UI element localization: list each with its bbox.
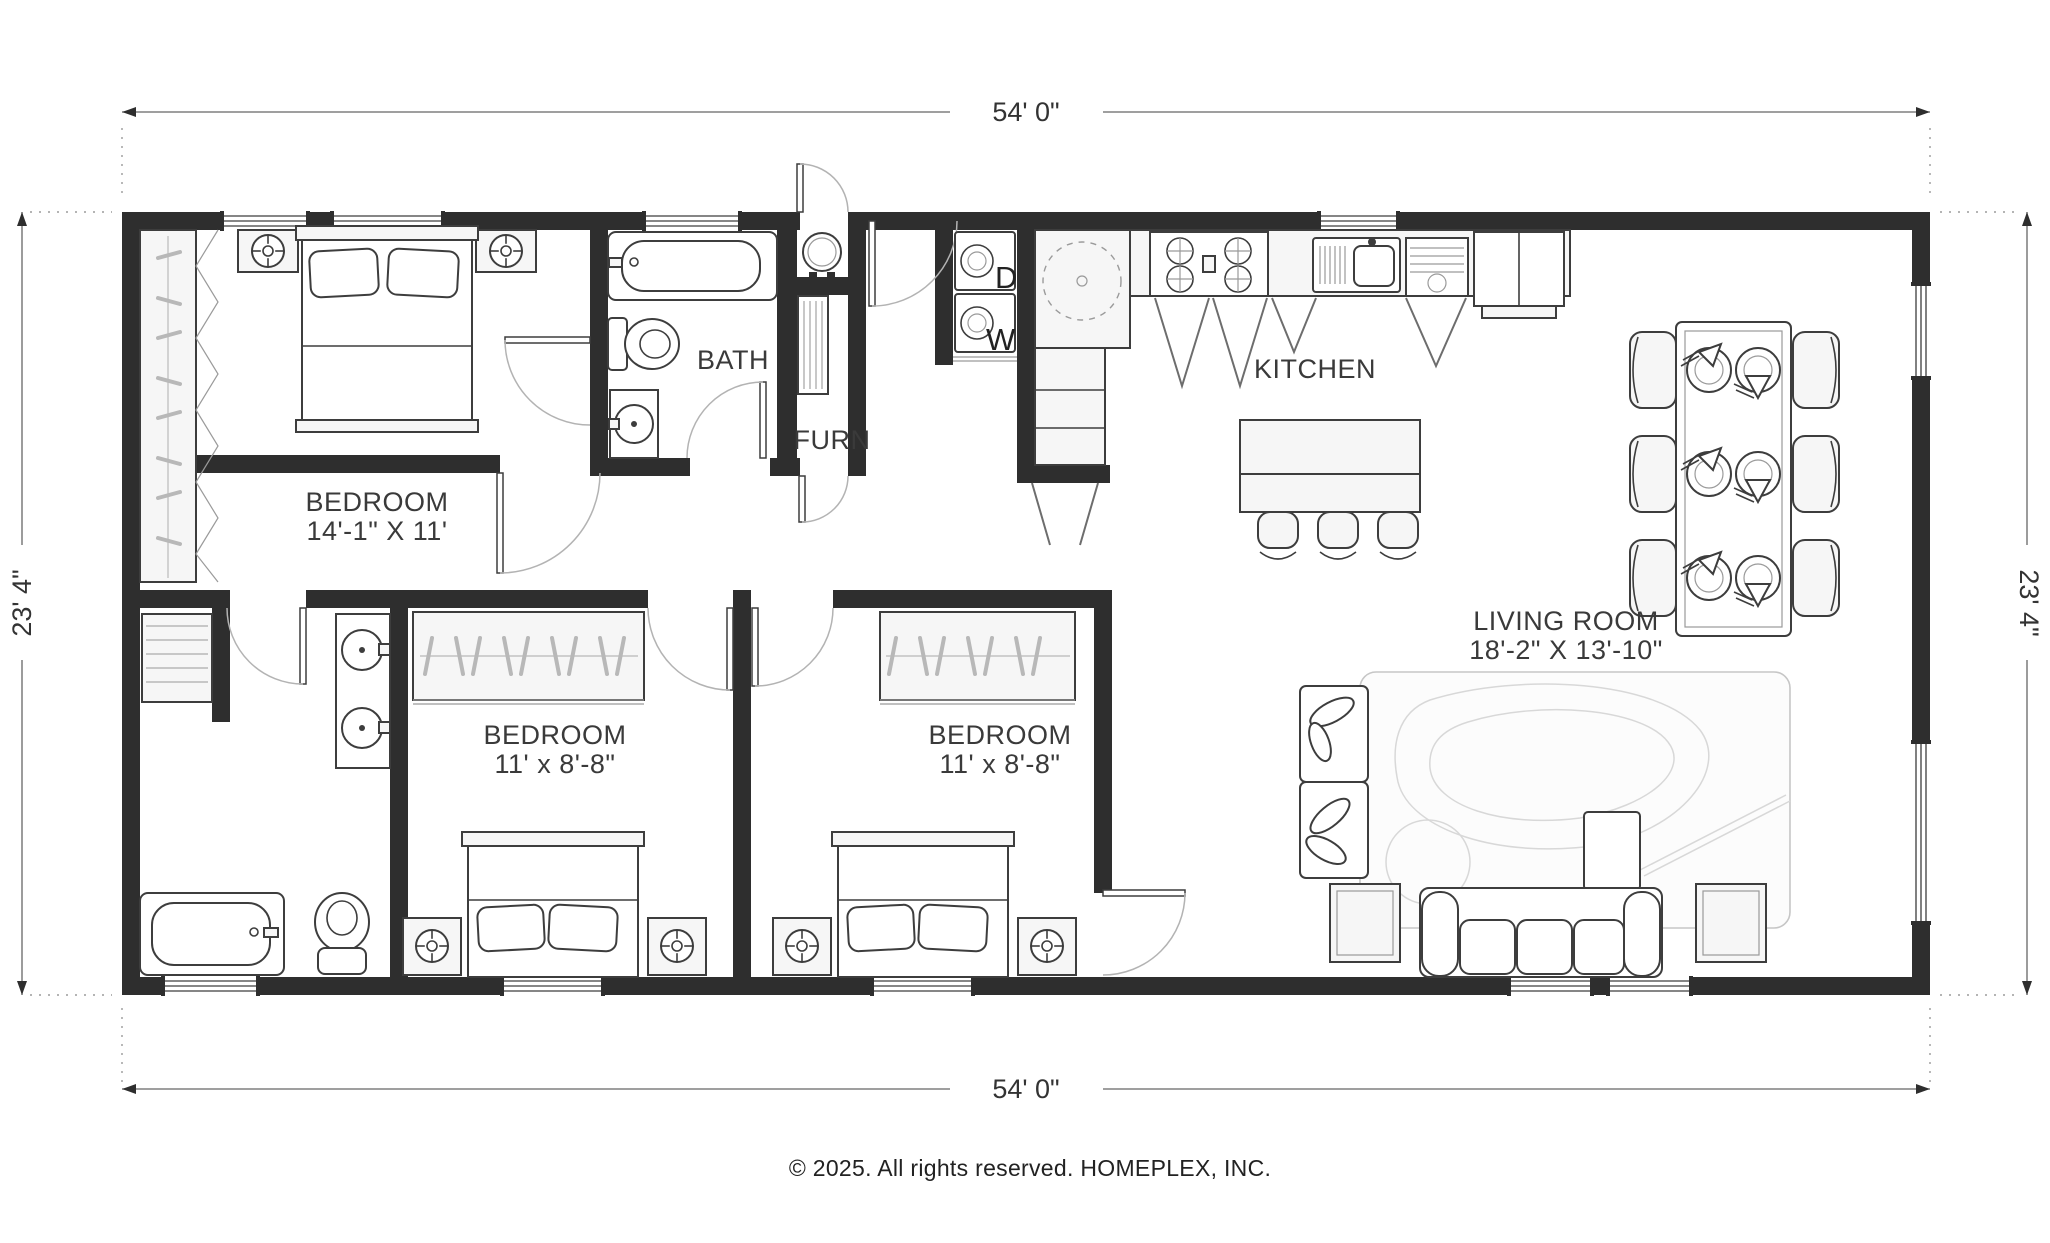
sofa-cushion	[1517, 920, 1572, 974]
corner-counter	[1035, 230, 1130, 348]
door-bath2	[227, 608, 306, 684]
sofa-arm	[1624, 892, 1660, 976]
washer-label: W	[986, 322, 1016, 357]
water-heater	[803, 233, 841, 271]
room-size-living: 18'-2" X 13'-10"	[1469, 635, 1663, 665]
lamp-icon	[490, 235, 522, 267]
sink-basin	[1354, 246, 1394, 286]
island-overhang	[1240, 474, 1420, 512]
dim-bottom: 54' 0"	[992, 1074, 1059, 1104]
lamp-icon	[252, 235, 284, 267]
dim-top: 54' 0"	[992, 97, 1059, 127]
kitchen: KITCHEN	[1032, 230, 1570, 559]
door-bedroom3	[752, 608, 833, 686]
pillow	[387, 248, 459, 298]
door-bath-bedroom1	[505, 337, 590, 425]
window-kitchen-sink	[1317, 211, 1400, 231]
vanity-faucet	[379, 722, 390, 733]
sofa-cushion	[1574, 920, 1624, 974]
room-label-kitchen: KITCHEN	[1254, 354, 1376, 384]
bed-footboard	[296, 420, 478, 432]
window-bedroom2	[500, 976, 605, 996]
toilet-bowl	[625, 319, 679, 369]
window-dining	[1911, 282, 1931, 380]
tub-faucet	[609, 258, 622, 267]
kitchen-island	[1240, 420, 1420, 474]
door-bedroom1	[497, 473, 600, 573]
room-label-bedroom3: BEDROOM	[928, 720, 1071, 750]
lamp-icon	[416, 930, 448, 962]
ottoman	[1584, 812, 1640, 890]
window-bath	[642, 211, 742, 231]
bathtub-basin	[622, 241, 760, 291]
stool-back	[1380, 552, 1416, 559]
pillow	[918, 904, 988, 951]
pillow	[548, 904, 618, 951]
vanity-faucet	[609, 419, 619, 429]
end-table	[1696, 884, 1766, 962]
window-living-right	[1606, 976, 1693, 996]
pillow	[477, 904, 545, 951]
room-label-bath: BATH	[697, 345, 769, 375]
room-size-bedroom3: 11' x 8'-8"	[940, 749, 1061, 779]
lamp-icon	[661, 930, 693, 962]
stool-seat	[1258, 512, 1298, 548]
door-utility-exterior	[797, 164, 848, 212]
bedroom3: BEDROOM 11' x 8'-8"	[773, 612, 1076, 977]
room-size-bedroom1: 14'-1" X 11'	[307, 516, 448, 546]
window-living-side	[1911, 740, 1931, 925]
pillow	[309, 248, 379, 297]
sofa-cushion	[1460, 920, 1515, 974]
vanity-faucet	[379, 644, 390, 655]
lamp-icon	[786, 930, 818, 962]
bedroom1-furniture: BEDROOM 14'-1" X 11'	[140, 226, 536, 582]
cabinet-door-symbols	[1032, 483, 1098, 545]
tub-faucet	[264, 928, 278, 937]
room-label-furnace: FURN	[794, 425, 871, 455]
window-bedroom3	[870, 976, 975, 996]
dryer-label: D	[995, 260, 1017, 295]
sink-faucet	[1368, 238, 1376, 246]
fridge-tray	[1482, 306, 1556, 318]
island-stools	[1258, 512, 1418, 559]
laundry-closet: D W	[953, 232, 1017, 361]
furnace	[798, 296, 828, 394]
stool-seat	[1318, 512, 1358, 548]
dishwasher	[1406, 238, 1468, 296]
door-hall-living	[1103, 890, 1185, 975]
window-living-left	[1507, 976, 1594, 996]
room-label-living: LIVING ROOM	[1473, 606, 1659, 636]
door-bedroom2	[648, 608, 733, 690]
bedroom2: BEDROOM 11' x 8'-8"	[403, 612, 706, 977]
room-label-bedroom2: BEDROOM	[483, 720, 626, 750]
utility-door-opening	[800, 212, 848, 230]
bath-fixtures: BATH	[608, 232, 777, 458]
bed-headboard	[296, 226, 478, 240]
door-bath-hall	[687, 382, 766, 458]
pantry-cabinet	[1035, 348, 1105, 465]
bathtub-basin	[152, 903, 270, 965]
bifold-door-symbol	[196, 230, 218, 582]
pillow	[847, 904, 915, 951]
dining	[1630, 322, 1839, 636]
bed-footboard	[462, 832, 644, 846]
sofa-arm	[1422, 892, 1458, 976]
living-room: LIVING ROOM 18'-2" X 13'-10"	[1300, 606, 1790, 977]
end-table	[1330, 884, 1400, 962]
lamp-icon	[1031, 930, 1063, 962]
stool-back	[1260, 552, 1296, 559]
dim-left: 23' 4"	[7, 569, 37, 636]
toilet-tank	[318, 948, 366, 974]
linen-shelves	[142, 614, 212, 702]
floor-plan-canvas: 54' 0" 54' 0" 23' 4" 23' 4"	[0, 0, 2050, 1243]
room-label-bedroom1: BEDROOM	[305, 487, 448, 517]
room-size-bedroom2: 11' x 8'-8"	[495, 749, 616, 779]
stool-back	[1320, 552, 1356, 559]
dim-right: 23' 4"	[2014, 569, 2044, 636]
window-bath2	[161, 976, 260, 996]
bed-footboard	[832, 832, 1014, 846]
bath2-fixtures	[140, 614, 390, 975]
door-furnace-room	[799, 476, 848, 522]
stool-seat	[1378, 512, 1418, 548]
copyright: © 2025. All rights reserved. HOMEPLEX, I…	[789, 1155, 1271, 1181]
floor-plan-page: 54' 0" 54' 0" 23' 4" 23' 4"	[0, 0, 2050, 1243]
